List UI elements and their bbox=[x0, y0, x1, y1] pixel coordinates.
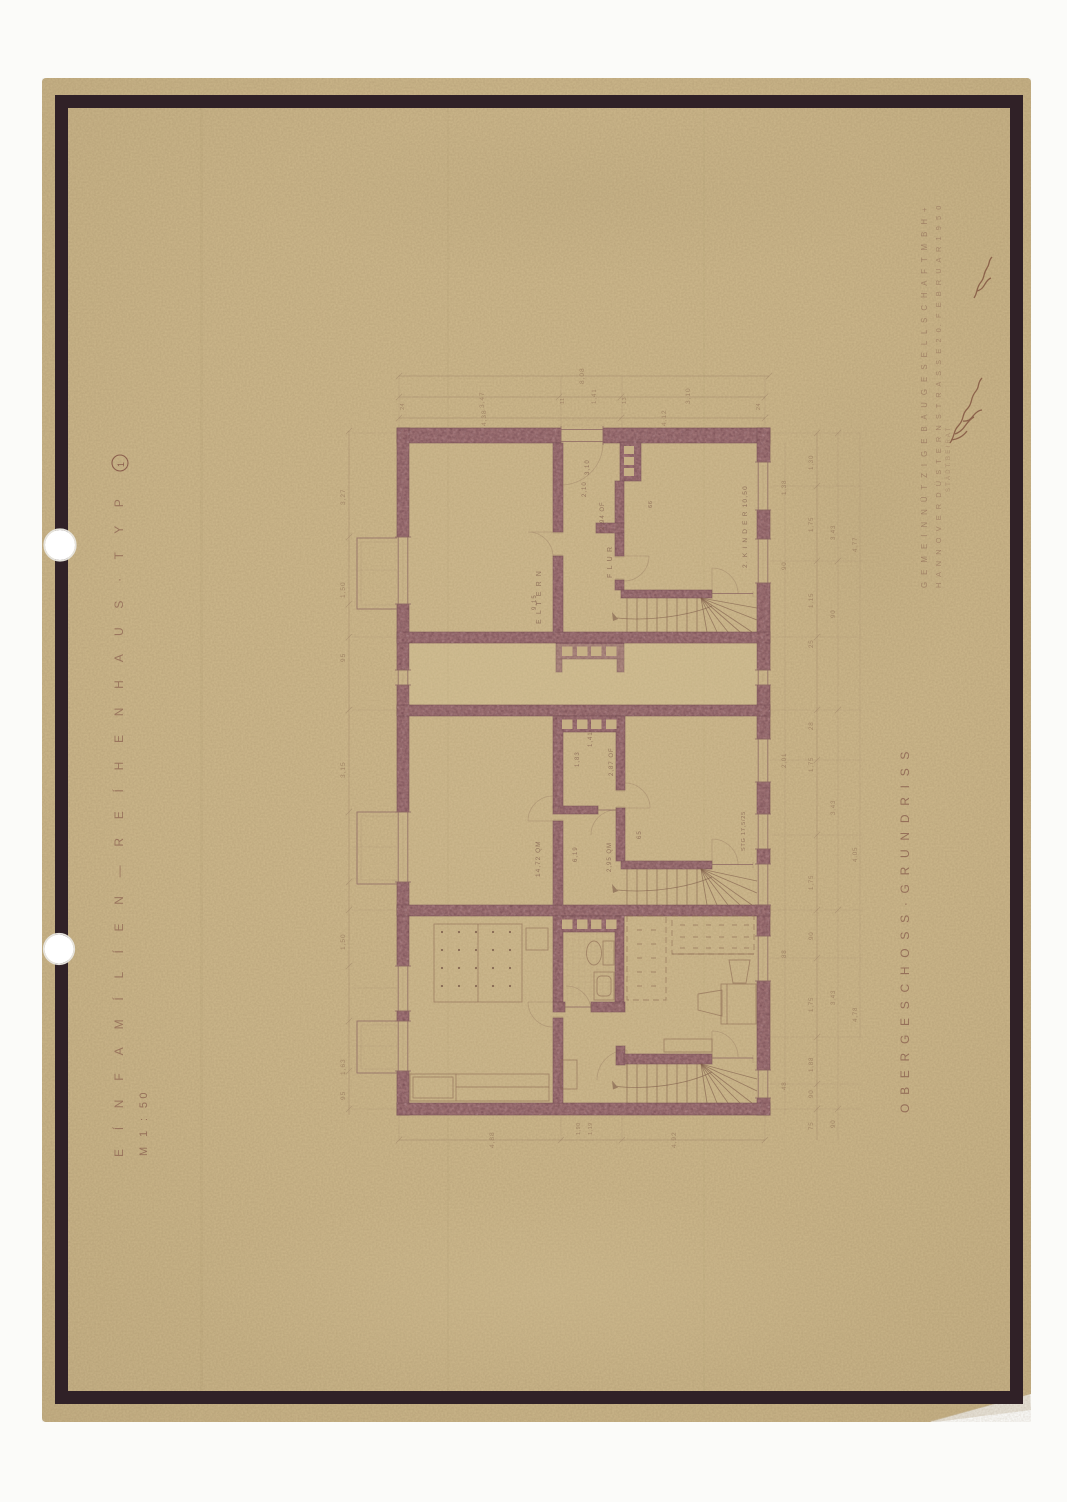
svg-text:95: 95 bbox=[340, 653, 347, 662]
svg-text:1,88: 1,88 bbox=[808, 1057, 815, 1072]
svg-text:1,41: 1,41 bbox=[592, 388, 598, 404]
svg-text:1,75: 1,75 bbox=[808, 517, 815, 532]
svg-text:3,10: 3,10 bbox=[585, 459, 591, 475]
svg-text:65: 65 bbox=[637, 830, 643, 839]
svg-text:24: 24 bbox=[400, 403, 406, 410]
svg-text:90: 90 bbox=[808, 932, 815, 940]
svg-text:1,75: 1,75 bbox=[808, 757, 815, 772]
svg-text:3,10: 3,10 bbox=[685, 387, 692, 404]
svg-text:1,38: 1,38 bbox=[781, 480, 788, 495]
svg-text:24: 24 bbox=[756, 403, 762, 410]
svg-text:E Í N F A M Í L Í E N — R E: E Í N F A M Í L Í E N — R E Í H E N H A … bbox=[111, 492, 126, 1157]
svg-text:75: 75 bbox=[808, 1122, 815, 1130]
svg-text:4,78: 4,78 bbox=[852, 1007, 859, 1022]
svg-text:4,05: 4,05 bbox=[852, 847, 859, 862]
svg-text:14,72 QM: 14,72 QM bbox=[535, 840, 542, 877]
svg-text:1,41: 1,41 bbox=[588, 731, 594, 747]
svg-text:11: 11 bbox=[560, 397, 566, 404]
svg-text:2,87 OF: 2,87 OF bbox=[609, 747, 615, 776]
svg-text:1,90: 1,90 bbox=[576, 1122, 582, 1135]
svg-text:M 1 : 50: M 1 : 50 bbox=[138, 1089, 150, 1156]
svg-text:9,15: 9,15 bbox=[532, 594, 538, 610]
svg-text:4,88: 4,88 bbox=[489, 1131, 496, 1148]
svg-text:2,95 QM: 2,95 QM bbox=[607, 842, 613, 872]
svg-text:O B E R G E S C H O S S · G: O B E R G E S C H O S S · G R U N D R I … bbox=[898, 749, 912, 1113]
svg-text:STG 17,5/25: STG 17,5/25 bbox=[741, 811, 747, 851]
svg-text:1: 1 bbox=[116, 462, 126, 467]
svg-text:1,75: 1,75 bbox=[808, 875, 815, 890]
svg-text:2,10: 2,10 bbox=[582, 481, 588, 497]
svg-text:3,47: 3,47 bbox=[479, 391, 486, 408]
svg-text:3,43: 3,43 bbox=[830, 525, 837, 540]
svg-text:66: 66 bbox=[648, 500, 654, 508]
svg-text:13: 13 bbox=[622, 397, 628, 404]
svg-text:25: 25 bbox=[808, 640, 815, 648]
svg-text:48: 48 bbox=[781, 1082, 788, 1090]
svg-text:3,15: 3,15 bbox=[340, 761, 347, 778]
svg-text:3,43: 3,43 bbox=[830, 800, 837, 815]
svg-text:1,30: 1,30 bbox=[808, 455, 815, 470]
svg-text:4,77: 4,77 bbox=[852, 537, 859, 552]
svg-text:1,19: 1,19 bbox=[588, 1122, 594, 1135]
svg-text:90: 90 bbox=[781, 562, 788, 570]
svg-text:90: 90 bbox=[808, 1090, 815, 1098]
svg-text:1,15: 1,15 bbox=[808, 593, 815, 608]
svg-text:90: 90 bbox=[830, 1120, 837, 1128]
svg-text:28: 28 bbox=[808, 722, 815, 730]
svg-text:1,50: 1,50 bbox=[340, 581, 347, 598]
svg-text:F L U R: F L U R bbox=[607, 546, 614, 578]
svg-text:S T Ä D T. B E I R A T: S T Ä D T. B E I R A T bbox=[945, 427, 952, 492]
svg-text:3,43: 3,43 bbox=[830, 990, 837, 1005]
svg-text:G E M E I N N Ü T Z I G E B: G E M E I N N Ü T Z I G E B A U G E S E … bbox=[920, 205, 929, 588]
svg-text:88: 88 bbox=[781, 950, 788, 958]
svg-text:4,92: 4,92 bbox=[671, 1131, 678, 1148]
svg-text:90: 90 bbox=[830, 610, 837, 618]
svg-text:95: 95 bbox=[340, 1091, 347, 1100]
svg-text:H A N N O V E R D Ü S T E R: H A N N O V E R D Ü S T E R N S T R A S … bbox=[934, 204, 943, 588]
svg-text:1,63: 1,63 bbox=[340, 1058, 347, 1075]
svg-text:2,94 OF: 2,94 OF bbox=[600, 501, 606, 530]
svg-text:1,83: 1,83 bbox=[575, 751, 581, 767]
svg-text:1,50: 1,50 bbox=[340, 933, 347, 950]
svg-text:2. K I N D E R 10,50: 2. K I N D E R 10,50 bbox=[742, 485, 749, 568]
svg-text:3,27: 3,27 bbox=[340, 488, 347, 505]
svg-text:6,19: 6,19 bbox=[573, 846, 579, 862]
svg-text:2,01: 2,01 bbox=[781, 753, 788, 768]
svg-text:4,12: 4,12 bbox=[661, 409, 668, 426]
svg-text:4,38: 4,38 bbox=[481, 409, 488, 426]
svg-text:8,08: 8,08 bbox=[579, 367, 586, 384]
svg-text:1,75: 1,75 bbox=[808, 997, 815, 1012]
